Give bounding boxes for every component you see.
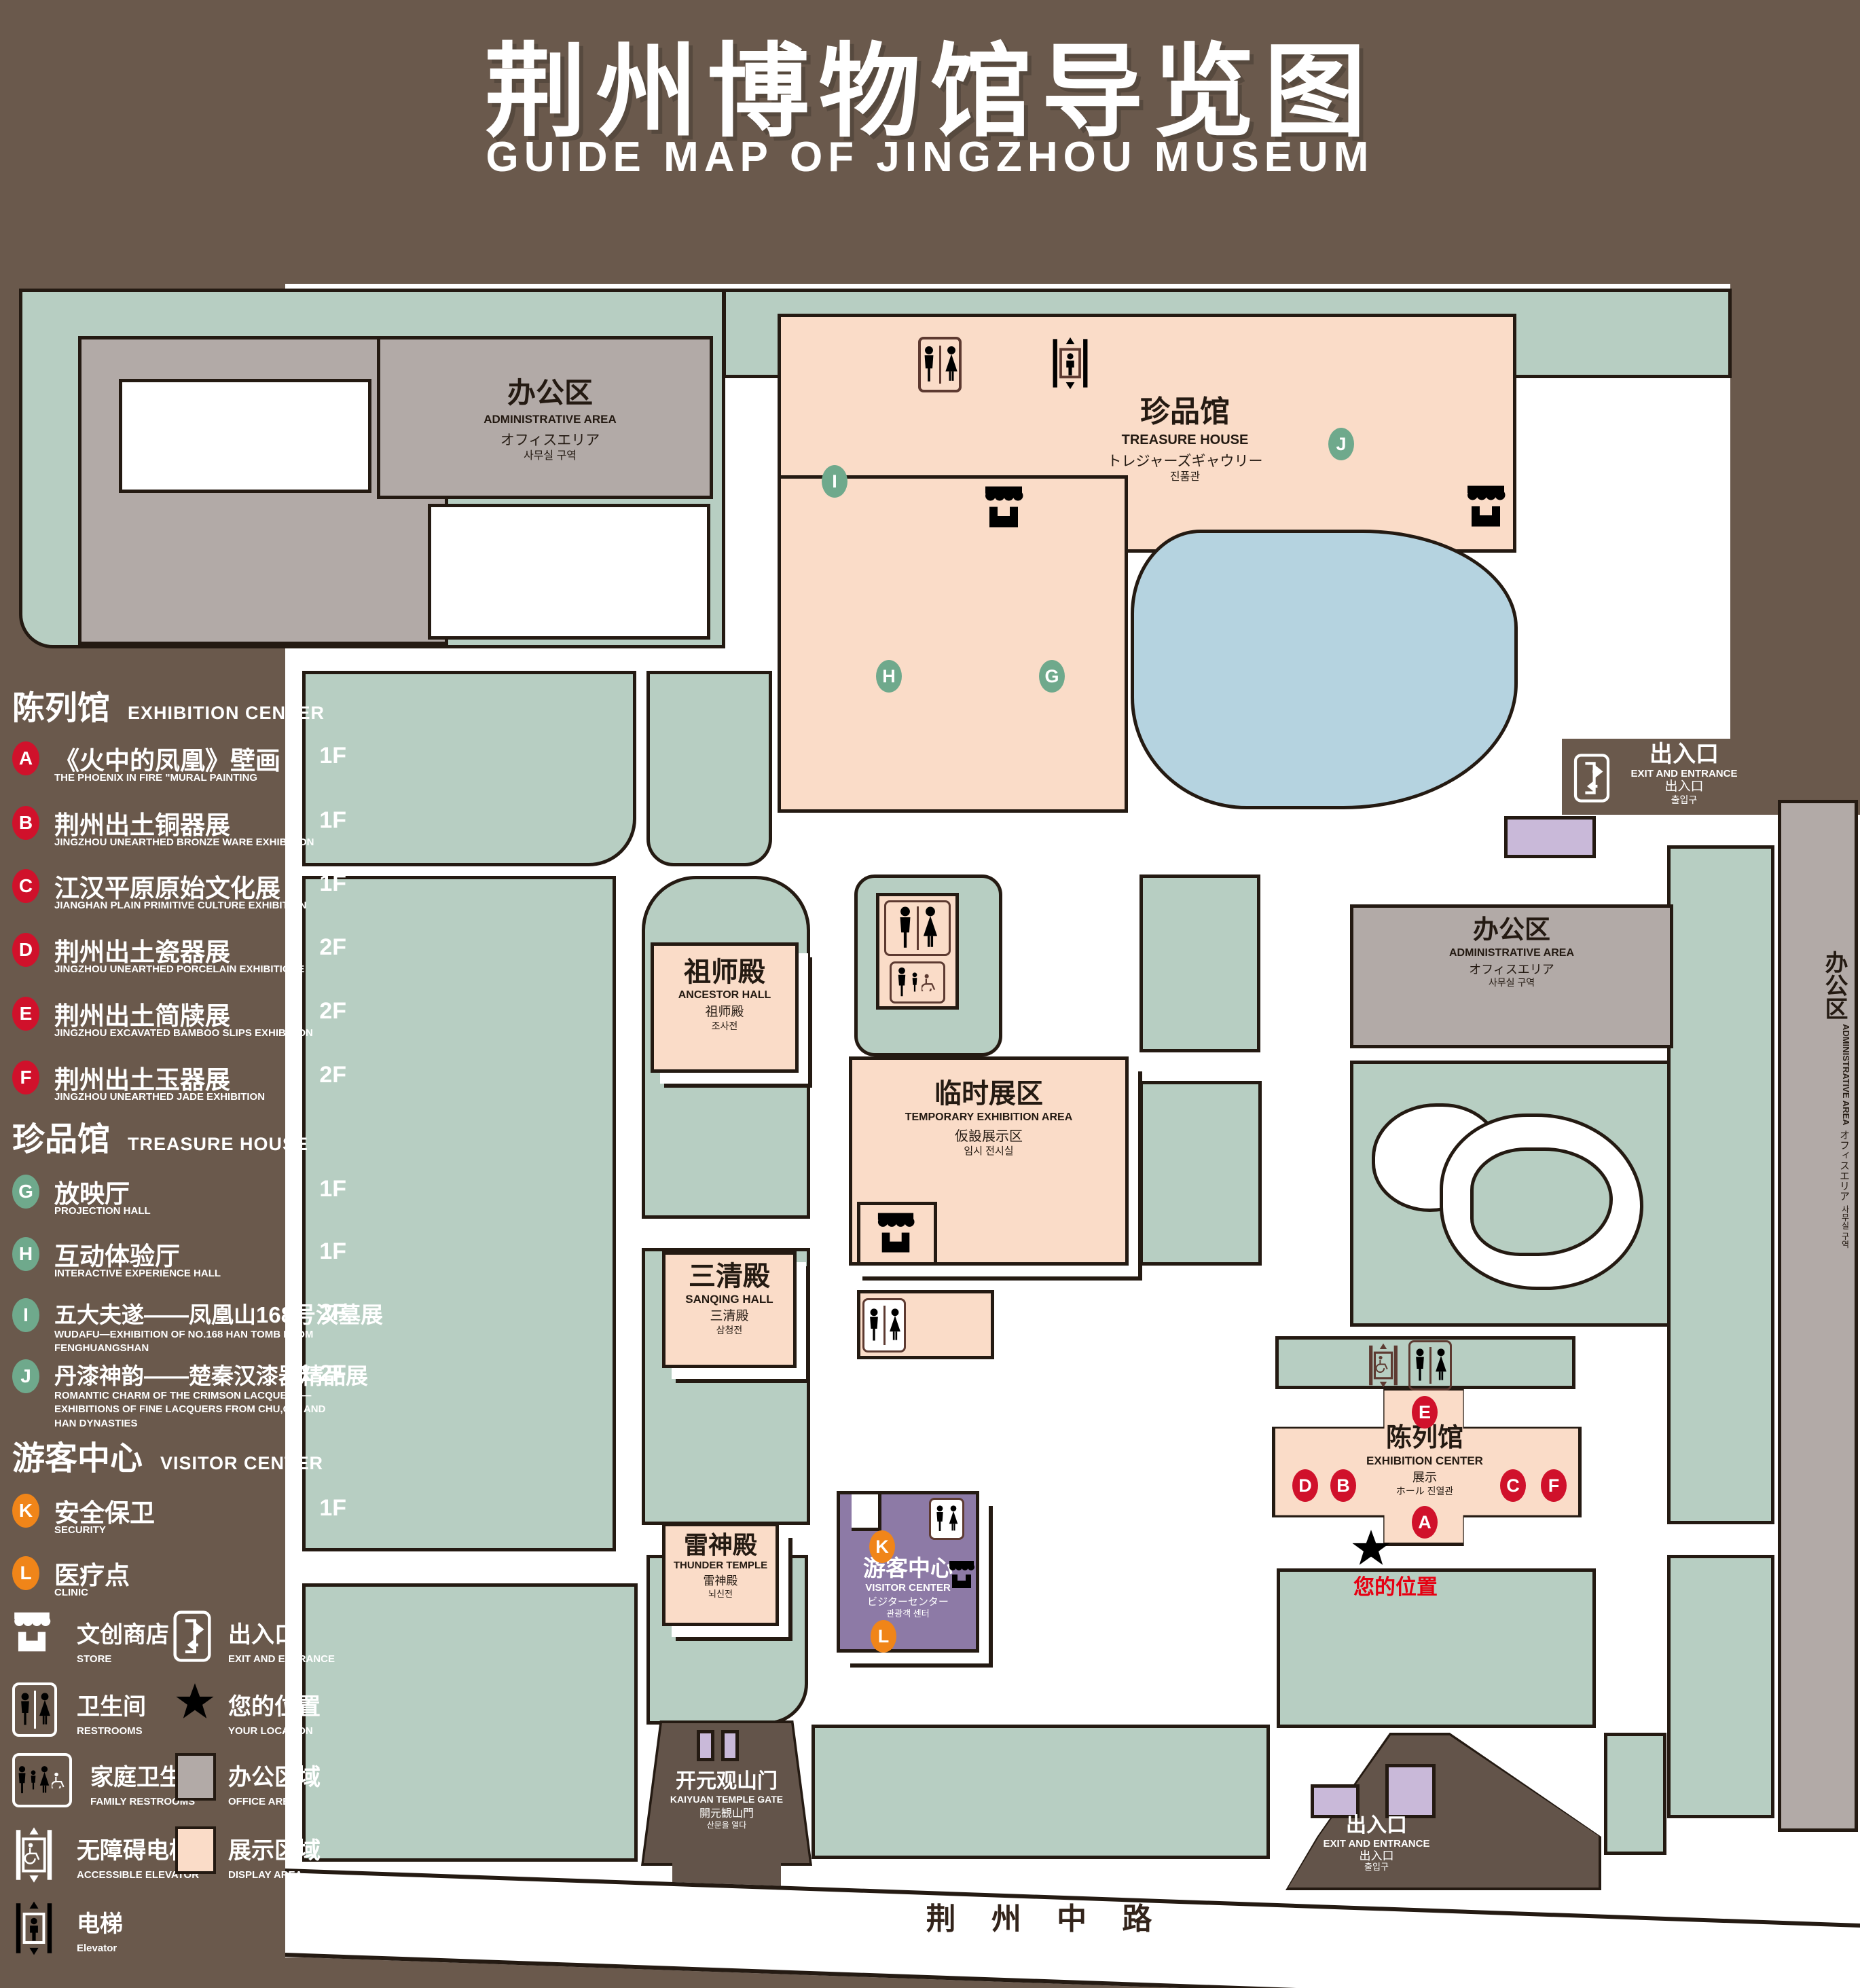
lawn-courtyard	[646, 671, 772, 866]
label-sanqing-hall: 三清殿 SANQING HALL 三清殿 삼청전	[662, 1260, 797, 1336]
legend: 陈列馆 EXHIBITION CENTER A 《火中的凤凰》壁画 THE PH…	[12, 676, 346, 1972]
page-subtitle: GUIDE MAP OF JINGZHOU MUSEUM	[0, 133, 1860, 181]
your-location-star-icon	[175, 1682, 215, 1719]
restrooms-icon	[1408, 1340, 1452, 1391]
poster-corner	[1730, 284, 1860, 745]
building-treasure-house-wing	[778, 475, 1128, 813]
admin-nw-courtyard2	[428, 504, 710, 640]
store-icon	[1465, 482, 1506, 532]
legend-section-title-en: EXHIBITION CENTER	[128, 703, 325, 724]
elevator-icon	[1051, 335, 1089, 391]
map-badge-k: K	[869, 1530, 895, 1563]
exit-icon	[1573, 754, 1611, 803]
label-admin-nw: 办公区 ADMINISTRATIVE AREA オフィスエリア 사무실 구역	[441, 375, 659, 464]
label-kaiyuan-gate: 开元观山门 KAIYUAN TEMPLE GATE 開元観山門 산문을 열다	[645, 1769, 808, 1830]
map-badge-b: B	[1330, 1469, 1356, 1502]
restrooms-icon	[918, 337, 962, 392]
map-badge-d: D	[1292, 1469, 1318, 1502]
legend-section-treasure-house: 珍品馆 TREASURE HOUSE	[12, 1112, 308, 1160]
map-badge-a: A	[1412, 1506, 1438, 1539]
label-ancestor-hall: 祖师殿 ANCESTOR HALL 祖师殿 조사전	[651, 956, 799, 1032]
badge-c: C	[12, 869, 39, 903]
store-icon	[948, 1558, 975, 1593]
gate-block-ne	[1504, 816, 1596, 858]
elevator-icon	[12, 1900, 56, 1957]
label-exit-se: 出入口 EXIT AND ENTRANCE 出入口 출입구	[1305, 1814, 1448, 1873]
label-admin-strip: 办公区 ADMINISTRATIVE AREA オフィスエリア 사무실 구역	[1786, 951, 1851, 1263]
your-location-label: 您的位置	[1307, 1570, 1484, 1600]
badge-l: L	[12, 1556, 39, 1590]
lawn-west	[302, 876, 616, 1551]
restrooms-icon	[862, 1298, 906, 1352]
store-icon	[12, 1610, 52, 1655]
map-badge-c: C	[1500, 1469, 1526, 1502]
map-badge-l: L	[871, 1620, 896, 1653]
gate-block-se	[1385, 1764, 1436, 1818]
map-badge-g: G	[1039, 660, 1065, 693]
map-badge-f: F	[1541, 1469, 1567, 1502]
family-restrooms-icon	[890, 961, 945, 1004]
restrooms-icon	[929, 1498, 964, 1540]
display-area-swatch	[175, 1826, 216, 1874]
lawn-center	[1139, 875, 1260, 1052]
badge-h: H	[12, 1237, 39, 1271]
lawn-right-lower	[1667, 1555, 1774, 1818]
accessible-elevator-icon	[12, 1826, 56, 1883]
office-area-swatch	[175, 1753, 216, 1801]
badge-d: D	[12, 933, 39, 967]
gate-pillar	[721, 1730, 739, 1761]
badge-a: A	[12, 741, 39, 775]
badge-j: J	[12, 1359, 39, 1393]
badge-b: B	[12, 806, 39, 840]
family-restrooms-icon	[12, 1753, 72, 1807]
map-badge-e: E	[1412, 1396, 1438, 1429]
label-treasure-house: 珍品馆 TREASURE HOUSE トレジャーズギャウリー 진품관	[1083, 392, 1287, 485]
label-exit-ne: 出入口 EXIT AND ENTRANCE 出入口 출입구	[1616, 741, 1752, 805]
your-location-star-icon	[1351, 1529, 1391, 1566]
gate-pillar	[697, 1730, 714, 1761]
legend-section-exhibition-center: 陈列馆 EXHIBITION CENTER	[12, 681, 325, 729]
exit-icon	[172, 1610, 213, 1662]
lawn-exit-side	[1604, 1733, 1666, 1855]
label-admin-mid: 办公区 ADMINISTRATIVE AREA オフィスエリア 사무실 구역	[1400, 915, 1624, 989]
legend-section-title: 陈列馆	[12, 681, 110, 729]
legend-section-visitor-center: 游客中心 VISITOR CENTER	[12, 1431, 323, 1479]
accessible-elevator-icon	[1368, 1342, 1399, 1389]
pond	[1131, 530, 1518, 809]
legend-symbols-row: 电梯 Elevator	[12, 1900, 346, 1968]
restrooms-icon	[884, 900, 951, 956]
admin-nw-courtyard	[119, 379, 371, 493]
map-badge-j: J	[1328, 428, 1354, 460]
lawn-center	[1139, 1081, 1262, 1266]
legend-symbols-row: 家庭卫生间 FAMILY RESTROOMS 办公区域 OFFICE AREA	[12, 1753, 346, 1821]
label-temporary-exhibition: 临时展区 TEMPORARY EXHIBITION AREA 仮設展示区 임시 …	[854, 1077, 1123, 1158]
store-icon	[876, 1210, 915, 1257]
map-badge-i: I	[822, 465, 847, 498]
visitor-center-notch	[852, 1494, 881, 1531]
legend-symbols-row: 卫生间 RESTROOMS 您的位置 YOUR LOCATION	[12, 1682, 346, 1750]
badge-i: I	[12, 1298, 39, 1332]
legend-symbols-row: 文创商店 STORE 出入口 EXIT AND ENTRANCE	[12, 1610, 346, 1678]
map-badge-h: H	[876, 660, 902, 693]
restrooms-icon	[12, 1682, 57, 1737]
lawn-courtyard	[302, 671, 636, 866]
lawn-south	[812, 1725, 1270, 1859]
museum-guide-poster: 荆州博物馆导览图 GUIDE MAP OF JINGZHOU MUSEUM 办公…	[0, 0, 1860, 1988]
label-thunder-temple: 雷神殿 THUNDER TEMPLE 雷神殿 뇌신전	[662, 1530, 779, 1599]
gate-block-se	[1311, 1784, 1360, 1818]
badge-e: E	[12, 997, 39, 1031]
road-label: 荆 州 中 路	[903, 1894, 1188, 1938]
lawn-southwest	[302, 1583, 638, 1862]
badge-f: F	[12, 1061, 39, 1094]
lawn-right	[1667, 845, 1774, 1524]
badge-k: K	[12, 1494, 39, 1528]
legend-symbols-row: 无障碍电梯 ACCESSIBLE ELEVATOR 展示区域 DISPLAY A…	[12, 1826, 346, 1894]
store-icon	[983, 483, 1024, 532]
badge-g: G	[12, 1175, 39, 1209]
